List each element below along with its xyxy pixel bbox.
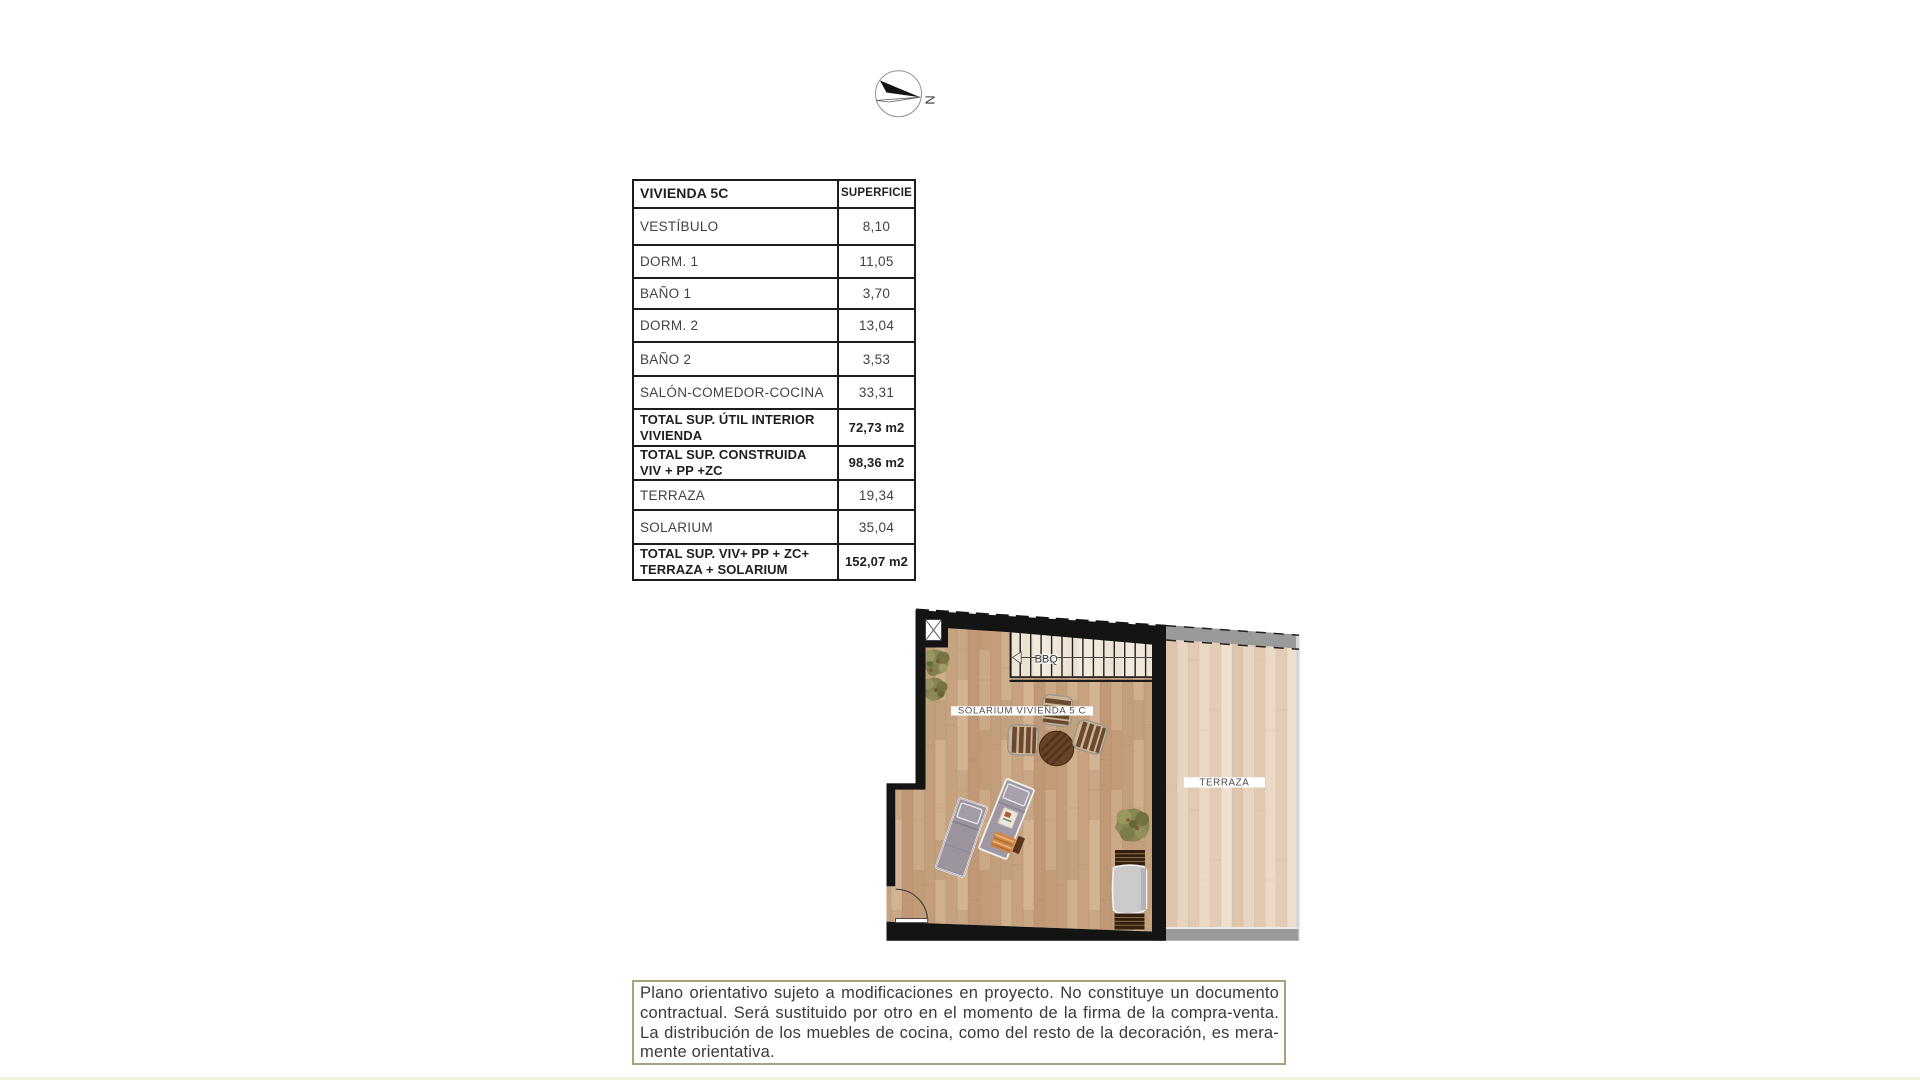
svg-text:TERRAZA: TERRAZA [1199, 778, 1249, 789]
svg-text:SOLARIUM VIVIENDA 5 C: SOLARIUM VIVIENDA 5 C [958, 706, 1086, 717]
svg-text:BBQ: BBQ [1035, 653, 1059, 665]
svg-text:N: N [923, 95, 938, 104]
